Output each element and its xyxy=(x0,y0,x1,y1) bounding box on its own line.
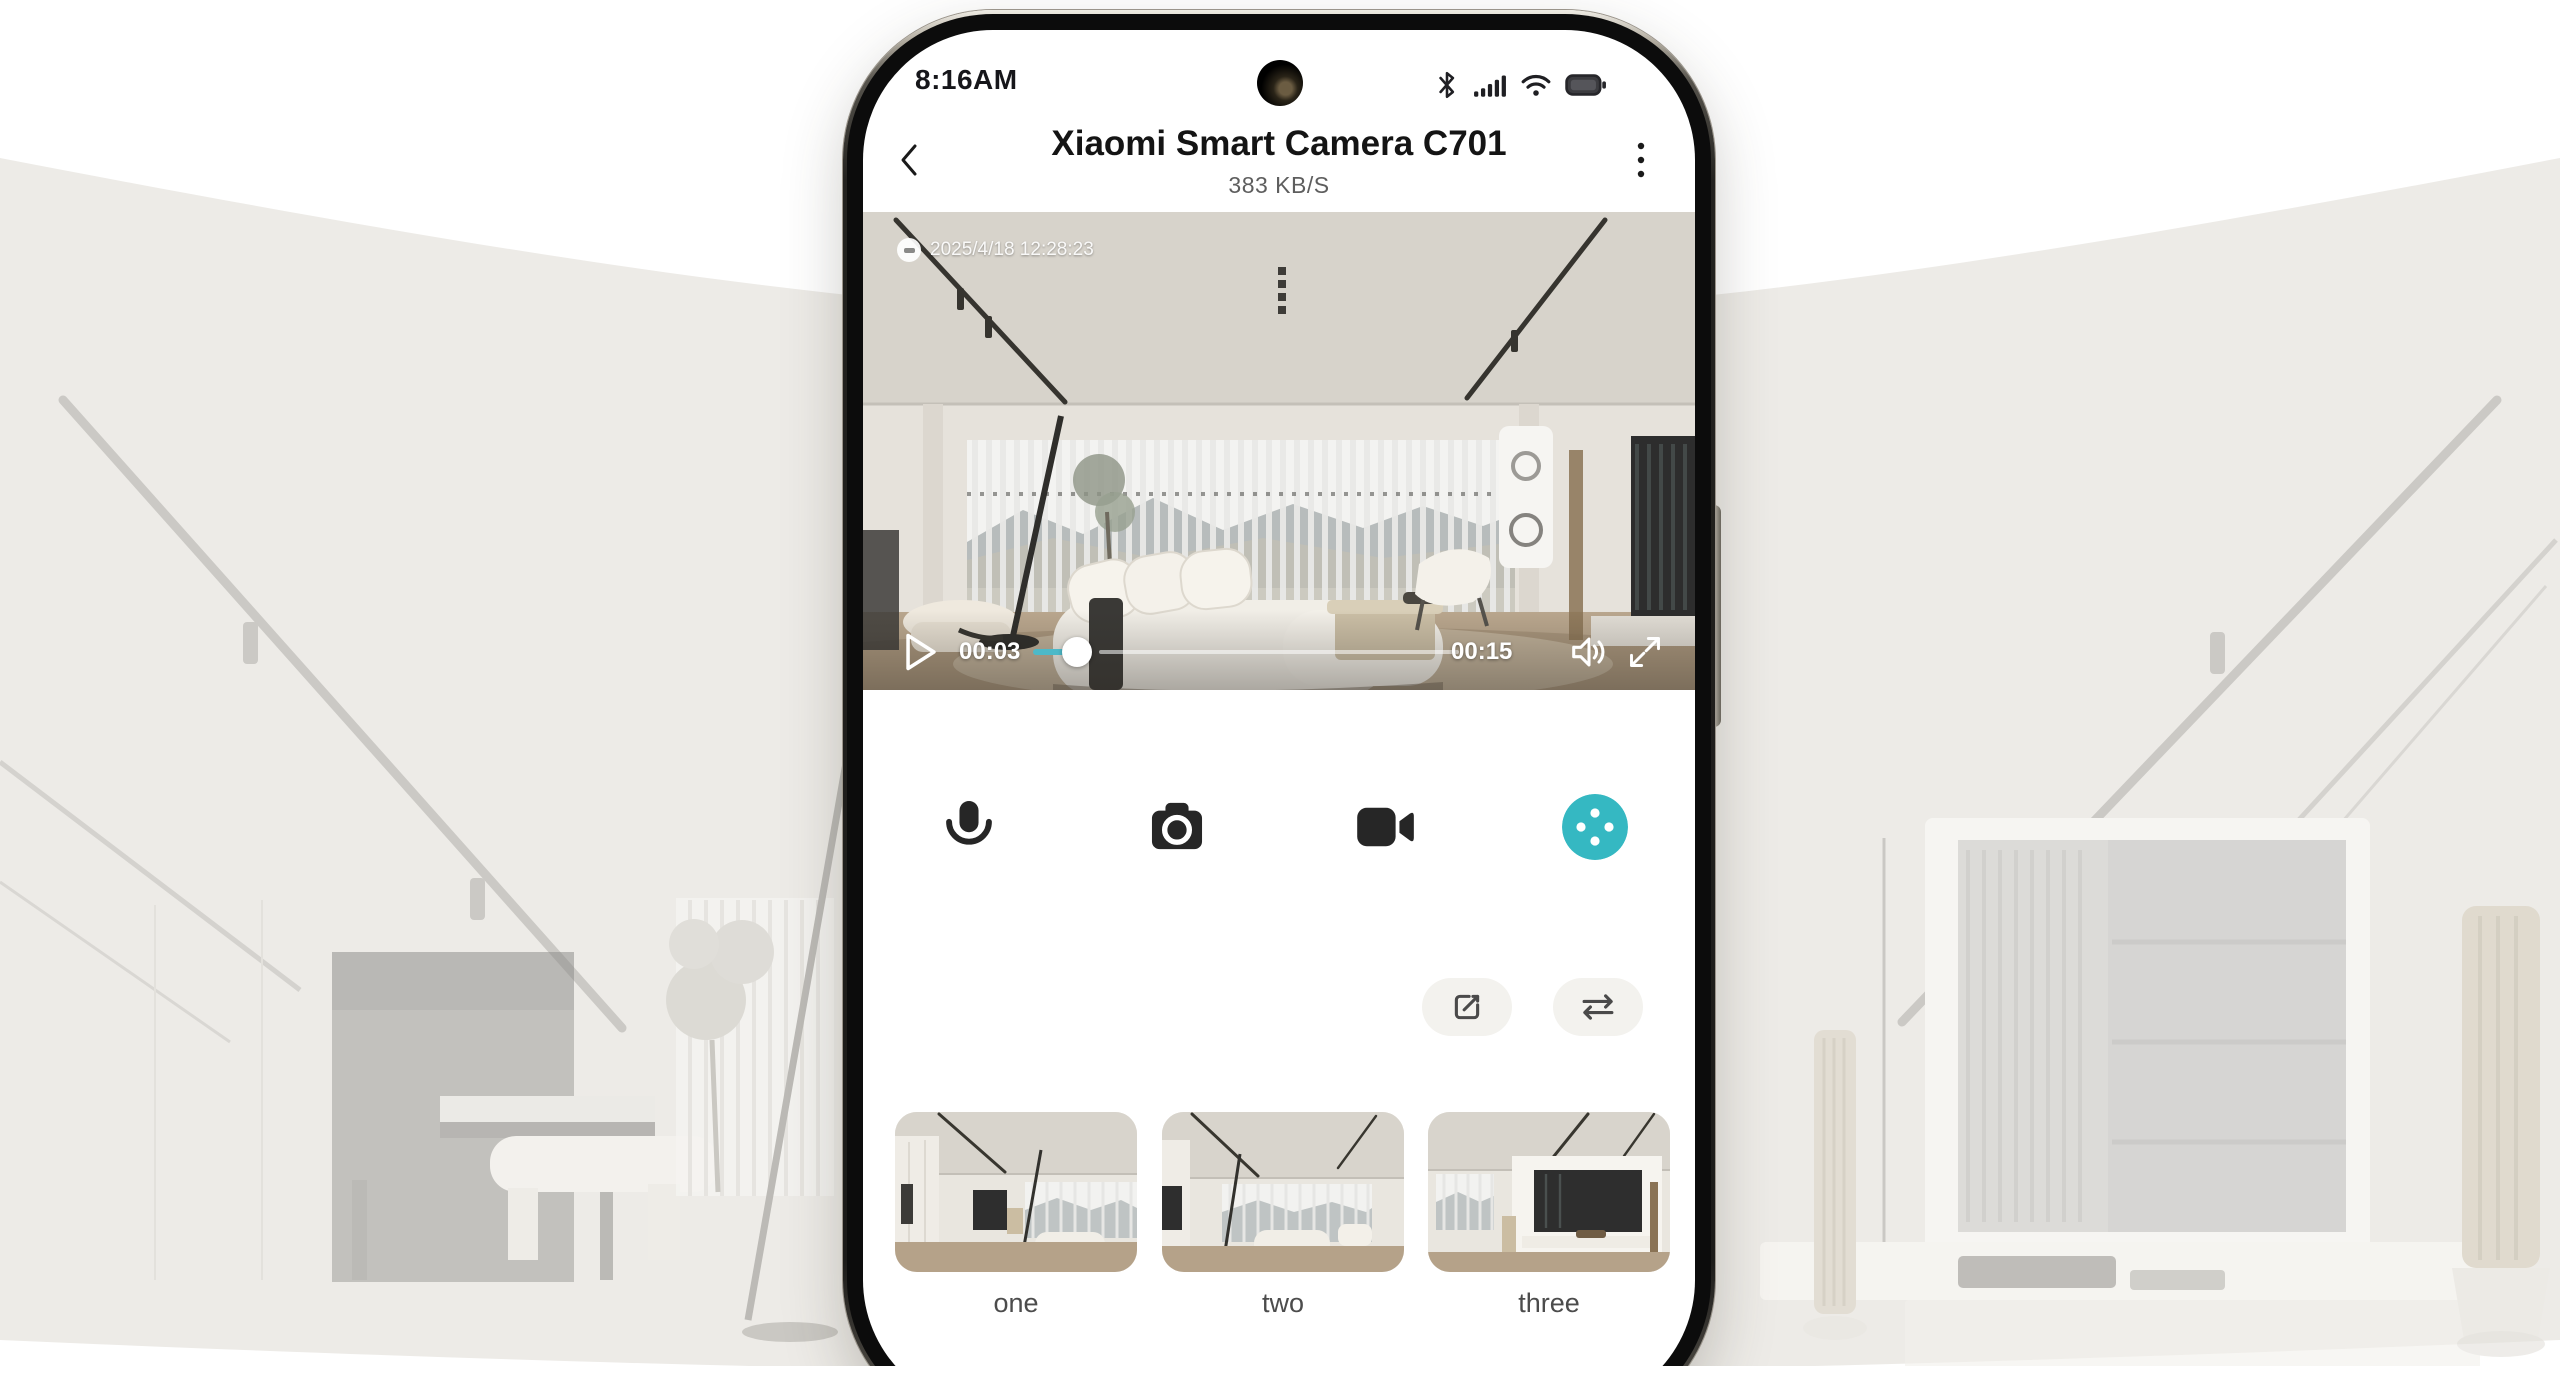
battery-icon xyxy=(1565,70,1607,100)
more-menu-button[interactable] xyxy=(1619,134,1663,186)
talk-button[interactable] xyxy=(933,791,1005,863)
page: 8:16AM xyxy=(0,0,2560,1391)
preset-thumbnail-two[interactable] xyxy=(1162,1112,1404,1272)
progress-track[interactable] xyxy=(1099,650,1459,654)
record-badge-icon xyxy=(897,238,921,262)
fullscreen-button[interactable] xyxy=(1627,634,1665,672)
bottom-crop-band xyxy=(0,1366,2560,1391)
microphone-icon xyxy=(943,798,995,856)
duration-time: 00:15 xyxy=(1451,638,1512,666)
bluetooth-icon xyxy=(1434,70,1460,100)
live-video-player[interactable]: 2025/4/18 12:28:23 00:03 00:15 xyxy=(863,212,1695,690)
ptz-dpad-icon xyxy=(1562,794,1628,860)
phone-screen: 8:16AM xyxy=(863,30,1695,1391)
status-icons xyxy=(1434,70,1607,100)
video-timestamp: 2025/4/18 12:28:23 xyxy=(930,239,1094,261)
snapshot-button[interactable] xyxy=(1141,791,1213,863)
video-timestamp-overlay: 2025/4/18 12:28:23 xyxy=(897,238,1094,262)
preset-thumbnail-one[interactable] xyxy=(895,1112,1137,1272)
volume-button[interactable] xyxy=(1569,632,1609,672)
preset-label-one: one xyxy=(895,1288,1137,1319)
camera-feed-image xyxy=(863,212,1695,690)
kebab-icon xyxy=(1619,134,1663,186)
preset-label-two: two xyxy=(1162,1288,1404,1319)
elapsed-time: 00:03 xyxy=(959,638,1020,666)
switch-position-button[interactable] xyxy=(1553,978,1643,1036)
edit-position-button[interactable] xyxy=(1422,978,1512,1036)
bitrate-indicator: 383 KB/S xyxy=(863,172,1695,199)
front-camera-punch-hole xyxy=(1257,60,1303,106)
preset-one-image xyxy=(895,1112,1137,1272)
fullscreen-icon xyxy=(1627,634,1663,670)
preset-three-image xyxy=(1428,1112,1670,1272)
wifi-icon xyxy=(1520,70,1552,100)
edit-icon xyxy=(1450,990,1484,1024)
swap-icon xyxy=(1580,990,1616,1024)
record-button[interactable] xyxy=(1350,791,1422,863)
video-camera-icon xyxy=(1355,803,1417,851)
ptz-control-button[interactable] xyxy=(1559,791,1631,863)
volume-icon xyxy=(1569,632,1609,672)
signal-icon xyxy=(1473,70,1507,100)
photo-camera-icon xyxy=(1148,801,1206,853)
phone-bezel: 8:16AM xyxy=(847,14,1711,1391)
play-button[interactable] xyxy=(903,632,943,672)
preset-thumbnail-three[interactable] xyxy=(1428,1112,1670,1272)
phone-frame: 8:16AM xyxy=(843,10,1715,1391)
page-title: Xiaomi Smart Camera C701 xyxy=(863,124,1695,164)
scrubber-knob[interactable] xyxy=(1062,637,1092,667)
status-time: 8:16AM xyxy=(915,64,1018,96)
preset-two-image xyxy=(1162,1112,1404,1272)
play-icon xyxy=(903,632,939,672)
preset-label-three: three xyxy=(1428,1288,1670,1319)
